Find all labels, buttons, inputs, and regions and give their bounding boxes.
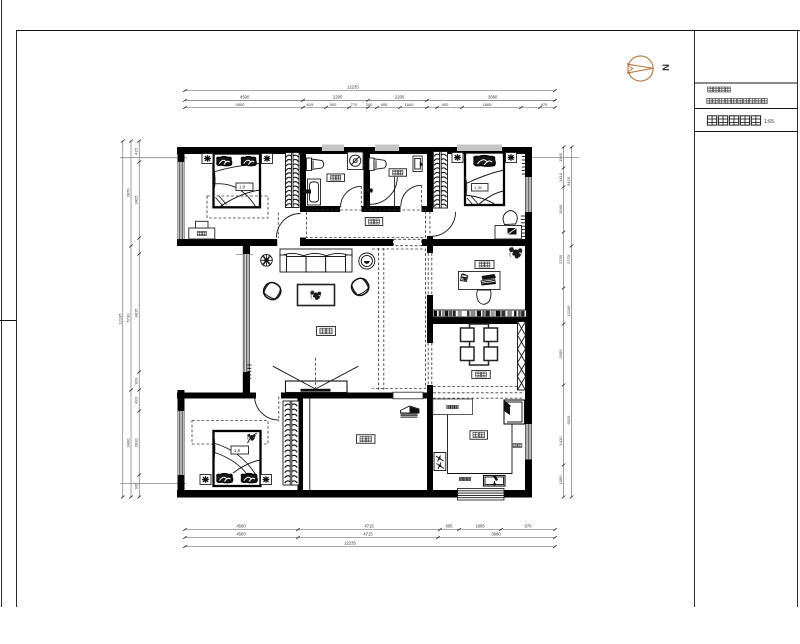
svg-text:1040: 1040 — [405, 102, 415, 107]
svg-text:5730: 5730 — [126, 313, 131, 323]
svg-text:3400: 3400 — [126, 438, 131, 448]
svg-text:1805: 1805 — [483, 102, 493, 107]
svg-text:900: 900 — [330, 102, 337, 107]
svg-text:3425: 3425 — [566, 176, 571, 186]
svg-text:905: 905 — [381, 102, 388, 107]
svg-text:4715: 4715 — [364, 524, 374, 529]
svg-text:12195: 12195 — [566, 305, 571, 317]
svg-text:4500: 4500 — [240, 95, 250, 100]
svg-text:3660: 3660 — [491, 532, 501, 537]
svg-text:2205: 2205 — [333, 95, 343, 100]
svg-text:4500: 4500 — [236, 524, 246, 529]
svg-text:1.8: 1.8 — [239, 185, 246, 190]
svg-text:12195: 12195 — [117, 313, 122, 325]
svg-text:2730: 2730 — [558, 254, 563, 264]
svg-text:1040: 1040 — [558, 204, 563, 214]
svg-text:12235: 12235 — [347, 85, 359, 90]
svg-text:N: N — [660, 64, 671, 71]
svg-text:905: 905 — [446, 524, 454, 529]
svg-text:1410: 1410 — [558, 436, 563, 446]
svg-text:1:65: 1:65 — [764, 119, 774, 125]
svg-text:1.35: 1.35 — [474, 185, 483, 190]
svg-text:615: 615 — [307, 102, 314, 107]
svg-text:2810: 2810 — [134, 438, 139, 448]
svg-text:1.8: 1.8 — [234, 448, 241, 453]
svg-text:2035: 2035 — [558, 349, 563, 359]
svg-text:2870: 2870 — [126, 188, 131, 198]
svg-text:4500: 4500 — [236, 532, 246, 537]
svg-text:935: 935 — [134, 482, 139, 489]
svg-text:420: 420 — [134, 396, 139, 403]
svg-text:970: 970 — [525, 524, 533, 529]
svg-text:6425: 6425 — [566, 415, 571, 425]
svg-text:4715: 4715 — [363, 532, 373, 537]
svg-text:1410: 1410 — [558, 172, 563, 182]
svg-text:415: 415 — [134, 147, 139, 154]
svg-text:770: 770 — [351, 102, 358, 107]
svg-text:975: 975 — [541, 102, 548, 107]
svg-text:1090: 1090 — [558, 475, 563, 485]
svg-text:240: 240 — [366, 102, 373, 107]
svg-text:3425: 3425 — [134, 195, 139, 205]
svg-text:3660: 3660 — [488, 95, 498, 100]
svg-text:4500: 4500 — [236, 102, 246, 107]
svg-text:1895: 1895 — [475, 524, 485, 529]
svg-text:2205: 2205 — [395, 95, 405, 100]
svg-text:2770: 2770 — [566, 254, 571, 264]
svg-text:900: 900 — [442, 102, 449, 107]
svg-text:4815: 4815 — [134, 308, 139, 318]
svg-text:12235: 12235 — [344, 541, 356, 546]
svg-text:920: 920 — [134, 377, 139, 384]
